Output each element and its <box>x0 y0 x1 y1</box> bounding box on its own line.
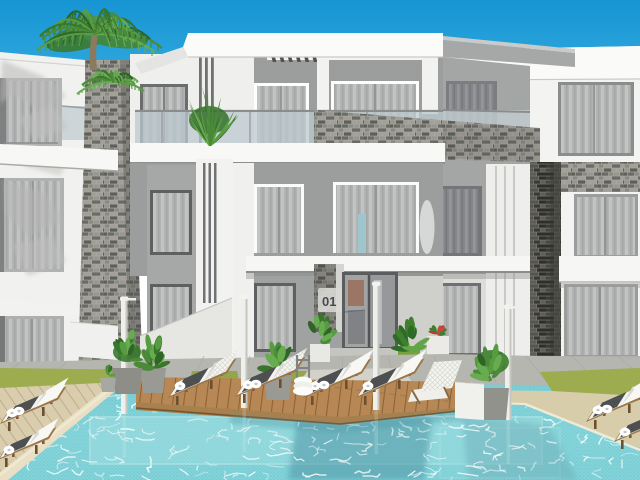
svg-text:01: 01 <box>322 294 336 309</box>
